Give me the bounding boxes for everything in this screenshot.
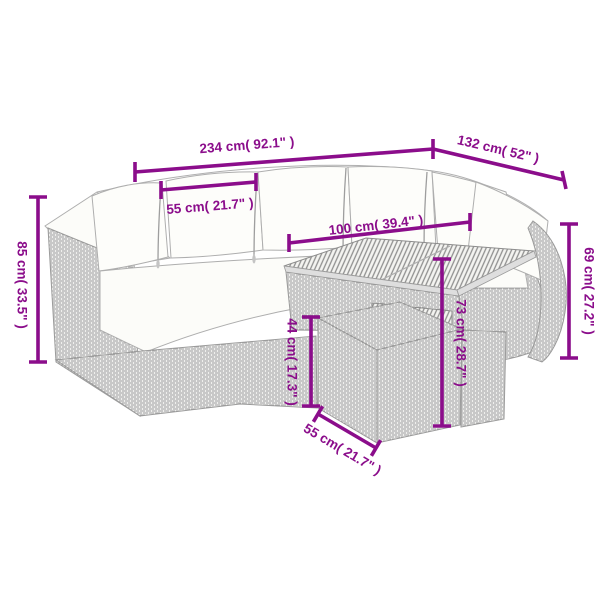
dimension-label: 44 cm( 17.3" ) [284,318,299,405]
dimension-label: 85 cm( 33.5" ) [14,241,29,328]
furniture-illustration [45,165,566,443]
dimension-label: 234 cm( 92.1" ) [199,134,295,156]
back-cushion [92,183,168,271]
dimension-back-height: 85 cm( 33.5" ) [14,197,47,362]
product-dimension-diagram: 234 cm( 92.1" ) 132 cm( 52" ) 55 cm( 21.… [0,0,600,600]
dimension-label: 73 cm( 28.7" ) [453,299,468,386]
dimension-label: 132 cm( 52" ) [456,132,541,166]
dimension-label: 69 cm( 27.2" ) [581,247,596,334]
diagram-canvas: 234 cm( 92.1" ) 132 cm( 52" ) 55 cm( 21.… [0,0,600,600]
back-cushion [348,167,436,250]
